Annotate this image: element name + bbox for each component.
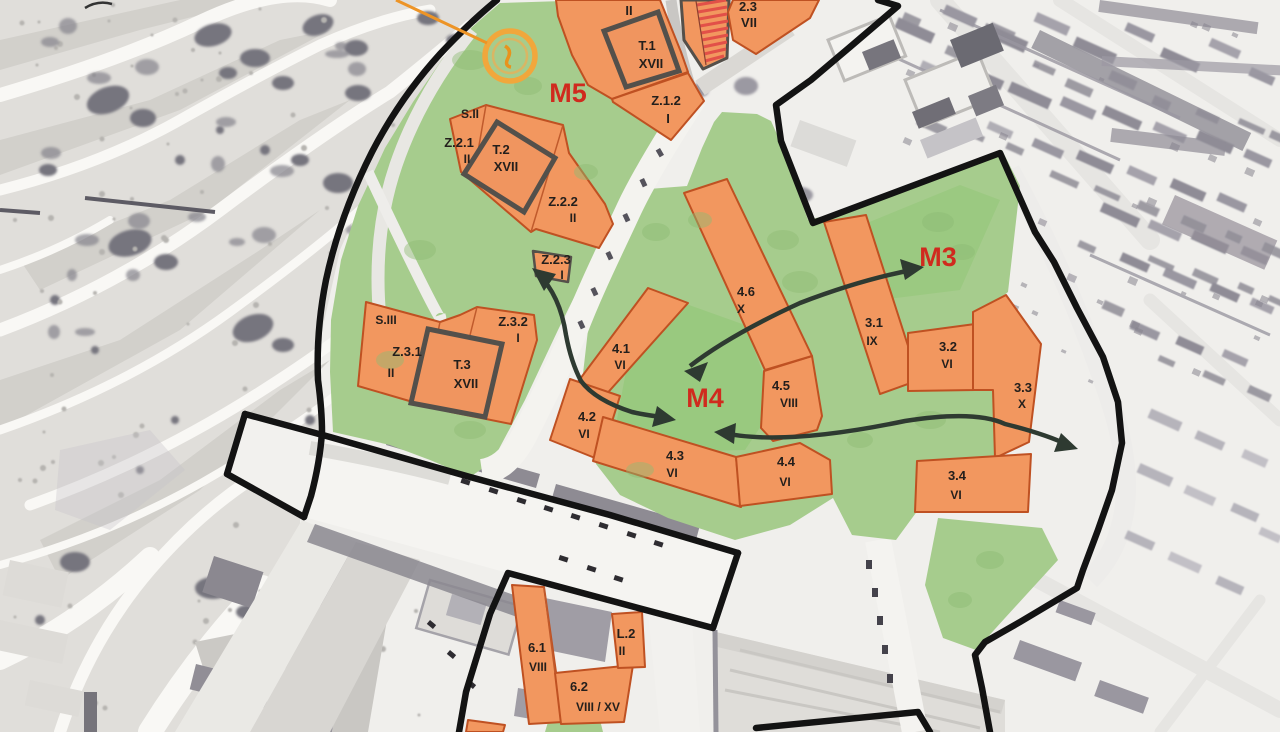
svg-text:4.2: 4.2 (578, 409, 596, 424)
svg-text:VI: VI (578, 427, 589, 441)
svg-text:X: X (1018, 397, 1026, 411)
svg-text:II: II (619, 644, 626, 658)
svg-text:6.1: 6.1 (528, 640, 546, 655)
svg-text:4.1: 4.1 (612, 341, 630, 356)
svg-text:II: II (388, 366, 395, 380)
svg-text:S.II: S.II (461, 107, 479, 121)
svg-text:Z.2.2: Z.2.2 (548, 194, 578, 209)
svg-text:I: I (560, 268, 563, 282)
svg-text:M4: M4 (686, 383, 724, 413)
svg-text:VII: VII (741, 15, 757, 30)
svg-text:3.2: 3.2 (939, 339, 957, 354)
svg-text:L.2: L.2 (617, 626, 636, 641)
svg-text:VIII / XV: VIII / XV (576, 700, 620, 714)
svg-text:T.1: T.1 (638, 38, 655, 53)
svg-text:VI: VI (666, 466, 677, 480)
svg-text:3.1: 3.1 (865, 315, 883, 330)
svg-text:4.5: 4.5 (772, 378, 790, 393)
svg-text:6.2: 6.2 (570, 679, 588, 694)
svg-text:4.4: 4.4 (777, 454, 796, 469)
svg-text:II: II (570, 211, 577, 225)
svg-text:I: I (666, 111, 670, 126)
svg-text:I: I (516, 331, 519, 345)
svg-text:T.2: T.2 (492, 142, 509, 157)
svg-text:II: II (625, 3, 632, 18)
svg-text:3.4: 3.4 (948, 468, 967, 483)
svg-text:VIII: VIII (529, 660, 547, 674)
svg-text:T.3: T.3 (453, 357, 470, 372)
svg-text:X: X (737, 302, 745, 316)
svg-text:3.3: 3.3 (1014, 380, 1032, 395)
svg-text:XVII: XVII (639, 56, 664, 71)
svg-text:2.3: 2.3 (739, 0, 757, 14)
svg-text:M5: M5 (549, 78, 587, 108)
svg-text:VI: VI (950, 488, 961, 502)
svg-text:VIII: VIII (780, 396, 798, 410)
svg-text:Z.3.2: Z.3.2 (498, 314, 528, 329)
svg-text:Z.2.1: Z.2.1 (444, 135, 474, 150)
svg-text:XVII: XVII (454, 376, 479, 391)
svg-text:4.6: 4.6 (737, 284, 755, 299)
svg-text:Z.1.2: Z.1.2 (651, 93, 681, 108)
svg-text:S.III: S.III (375, 313, 396, 327)
svg-text:VI: VI (941, 357, 952, 371)
svg-text:4.3: 4.3 (666, 448, 684, 463)
svg-text:VI: VI (614, 358, 625, 372)
svg-text:Z.2.3: Z.2.3 (541, 252, 571, 267)
svg-text:M3: M3 (919, 242, 957, 272)
svg-text:II: II (464, 152, 471, 166)
svg-text:XVII: XVII (494, 159, 519, 174)
svg-text:Z.3.1: Z.3.1 (392, 344, 422, 359)
svg-text:IX: IX (866, 334, 877, 348)
svg-text:VI: VI (779, 475, 790, 489)
